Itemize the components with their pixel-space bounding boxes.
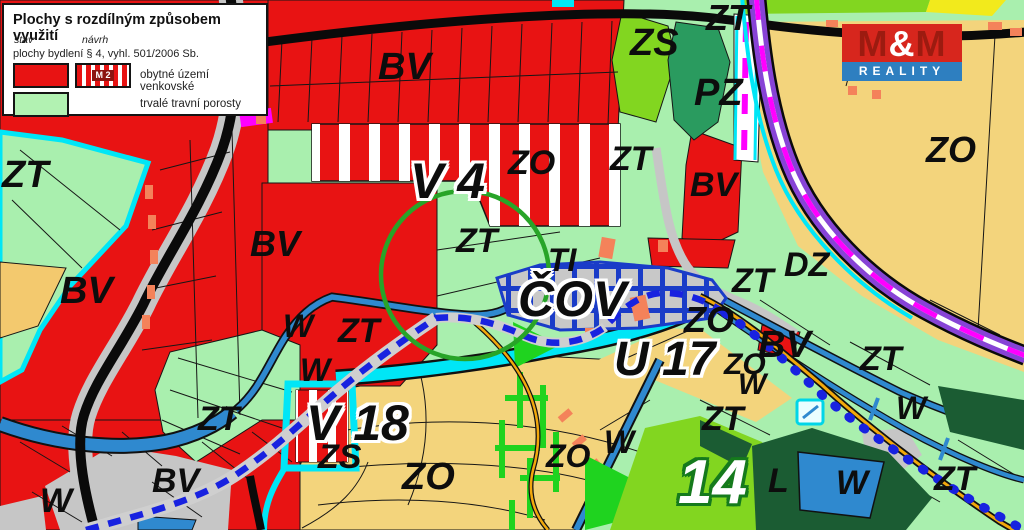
zone-label-zt: ZT: [610, 142, 652, 176]
zone-label-14: 14: [678, 452, 747, 514]
zone-label-zt: ZT: [702, 402, 744, 436]
zone-label-bv: BV: [60, 272, 113, 310]
zone-label-pz: PZ: [694, 74, 743, 112]
zone-label-zo: ZO: [546, 440, 590, 472]
legend-title: Plochy s rozdílným způsobem využití: [13, 12, 266, 44]
zone-label-zt: ZT: [706, 0, 750, 36]
zone-label-zt: ZT: [934, 462, 976, 496]
legend-swatch-residential-current: [13, 63, 69, 88]
zone-label-zt: ZT: [456, 224, 498, 258]
ampersand-glyph: &: [889, 23, 916, 64]
zone-label-v-4: V 4: [410, 156, 485, 206]
legend-column-stav: stav: [14, 34, 33, 46]
brand-logo-reality: REALITY: [842, 62, 962, 81]
zone-label-zo: ZO: [508, 146, 555, 180]
zone-label-zo: ZO: [926, 132, 976, 168]
brand-logo-mm: M&M: [842, 24, 962, 62]
zone-label-bv: BV: [152, 464, 199, 498]
zone-label-zt: ZT: [2, 156, 48, 194]
zone-label-w: W: [40, 484, 72, 518]
legend-label-grassland: trvalé travní porosty: [140, 98, 241, 110]
zone-label-w: W: [283, 310, 313, 342]
zone-label-čov: ČOV: [518, 274, 626, 324]
zone-label-w: W: [300, 354, 330, 386]
zone-label-u-17: U 17: [614, 336, 715, 384]
zone-label-zt: ZT: [732, 264, 774, 298]
zoning-map-viewport: ZTBVBVWZTWBVZOZTV 4ZTTIČOVZSZTPZBVZODZZT…: [0, 0, 1024, 530]
zone-label-zs: ZS: [318, 440, 361, 474]
brand-logo: M&M REALITY: [842, 24, 962, 81]
zone-label-zt: ZT: [338, 314, 380, 348]
legend-swatch-grassland: [13, 92, 69, 117]
zone-label-w: W: [836, 466, 868, 500]
legend-column-navrh: návrh: [82, 34, 108, 46]
zone-label-bv: BV: [690, 168, 737, 202]
zone-label-w: W: [738, 370, 766, 400]
zone-label-w: W: [604, 426, 634, 458]
zone-label-l: L: [768, 464, 789, 498]
zone-label-zt: ZT: [198, 402, 240, 436]
legend-section-title: plochy bydlení § 4, vyhl. 501/2006 Sb.: [13, 48, 199, 60]
zone-label-w: W: [896, 392, 926, 424]
map-legend: Plochy s rozdílným způsobem využití stav…: [2, 3, 268, 116]
legend-code-m2: M 2: [92, 70, 113, 81]
legend-label-residential: obytné území venkovské: [140, 69, 266, 93]
zone-label-zt: ZT: [860, 342, 902, 376]
zone-label-bv: BV: [378, 48, 431, 86]
zone-label-bv: BV: [250, 226, 300, 262]
legend-swatch-residential-proposed: M 2: [75, 63, 131, 88]
zone-label-zs: ZS: [630, 24, 679, 62]
zone-label-dz: DZ: [784, 248, 829, 282]
zone-label-zo: ZO: [402, 458, 455, 496]
